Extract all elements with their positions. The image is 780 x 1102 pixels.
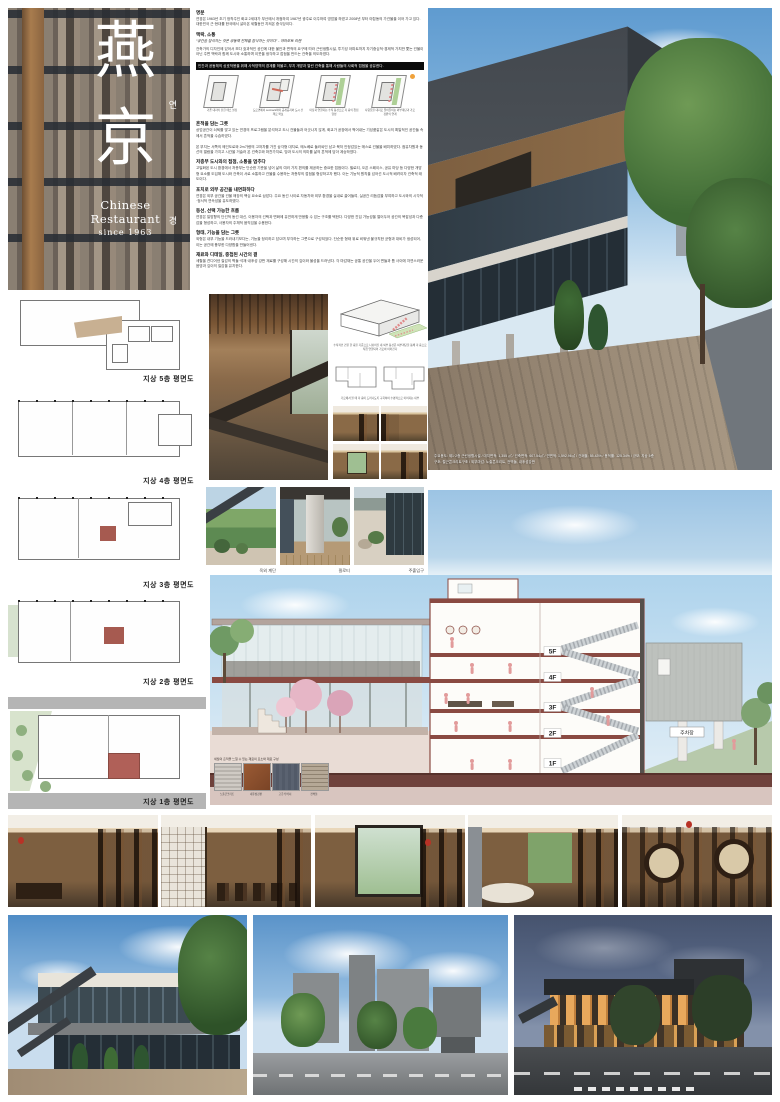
plan-stair-core (100, 526, 116, 541)
tree-canopy (178, 915, 247, 1035)
plan-wall (70, 601, 71, 661)
tall-window-green-view (355, 825, 423, 897)
stairwell-photo (209, 294, 328, 480)
hero-caption-line2: 구조: 철근콘크리트구조 / 외부마감: 노출콘크리트, 전벽돌, 내후성강판 (434, 460, 766, 466)
material-stone: 고흥석 버너 (272, 763, 298, 796)
wood-screen (98, 829, 158, 907)
lane-marking (514, 1072, 772, 1075)
intro-highlight: 인간과 공동체의 상호작용을 위해 사적영역의 경계를 허물고, 부지 개방과 … (196, 62, 424, 70)
intro-body-6: 연경은 일방향의 단선적 동선 대신, 이용자의 선택과 변화에 유연하게 반응… (196, 215, 424, 226)
mini-plan-diagrams (333, 364, 427, 394)
interior-photo-5 (622, 815, 772, 907)
red-lantern (18, 837, 24, 844)
wood-screen (359, 414, 379, 441)
annex-label: 주차장 (680, 730, 694, 737)
diagram-caption-2: 도로면에서 set-back하여 공개공지와 도시 산책로 확보 (252, 109, 304, 116)
wood-screen (381, 414, 399, 441)
exterior-photo-dusk (514, 915, 772, 1095)
street-tree (357, 1001, 397, 1049)
wood-screen (401, 452, 423, 479)
axonometric-diagram (333, 296, 427, 342)
logo-hanja-bottom: 京 (68, 109, 183, 168)
diagram-caption-1: 기존 대지의 닫힌 매스 설정 (196, 109, 248, 113)
material-palette: 노출콘크리트 내후성강판 고흥석 버너 전벽돌 (214, 763, 327, 796)
logo-reading-bottom: 경 (169, 214, 177, 227)
furniture (448, 701, 482, 707)
hero-caption: 주요용도: 제1·2종 근린생활시설 / 대지면적: 1,355 ㎡ / 건축면… (434, 454, 766, 466)
concept-diagram-3: 마당과 연결되는 수직 동선으로 각 층의 접점 형성 (308, 74, 360, 117)
material-swatch (301, 763, 329, 791)
floor-label-3f: 3F (549, 705, 557, 712)
intro-heading-7: 형태, 기능을 담는 그릇 (196, 230, 424, 236)
plan-tree (16, 725, 27, 736)
floor-label-4f: 4F (549, 675, 557, 682)
material-brick: 전벽돌 (301, 763, 327, 796)
red-lantern (425, 839, 431, 846)
wood-post (22, 8, 44, 290)
plan-5f: 지상 5층 평면도 (8, 292, 206, 390)
plan-5f-label: 지상 5층 평면도 (143, 374, 194, 384)
intro-body-7: 외형은 내부 기능을 드러내기보다는, 기능을 정리하고 담으며 부각하는 그릇… (196, 237, 424, 248)
concrete-volume (433, 987, 481, 1037)
cloud (534, 925, 674, 971)
material-swatch (272, 763, 300, 791)
plan-2f-label: 지상 2층 평면도 (143, 677, 194, 687)
plan-wall (78, 498, 79, 558)
white-lattice (161, 827, 207, 907)
plan-1f-label: 지상 1층 평면도 (143, 797, 194, 807)
plan-landscape (8, 605, 18, 657)
presentation-board: 燕 연 京 경 Chinese Restaurant since 1963 명분… (0, 0, 780, 1102)
intro-heading-4: 저층부 도시와의 접점, 소통을 멈추다 (196, 159, 424, 165)
interior-photo-3 (315, 815, 465, 907)
concept-diagram-4: 사람들을 대지로 끌어들이는 외부계단과 가로 정원의 연계 (364, 74, 416, 117)
round-table (478, 883, 534, 903)
horizon-haze (428, 557, 772, 577)
plan-tree (12, 750, 23, 761)
floor-label-2f: 2F (549, 731, 557, 738)
interior-photo-4 (468, 815, 618, 907)
exterior-photo-street (253, 915, 508, 1095)
lane-marking (253, 1074, 508, 1077)
plan-wall (72, 401, 73, 455)
logo: 燕 연 京 경 Chinese Restaurant since 1963 (68, 22, 183, 282)
material-label-4: 전벽돌 (301, 792, 327, 796)
red-lantern (686, 821, 692, 828)
intro-body-1: 연경은 1963년 초기 정착주인 화교 2세대가 부산에서 개점하여 1987… (196, 17, 424, 28)
cloud (510, 505, 640, 545)
intro-body-8: 세월을 견디어낸 질감의 벽돌·석재·내후성 강판 재료를 구성해 시간의 깊이… (196, 259, 424, 270)
logo-hanja-top: 燕 (68, 22, 183, 81)
intro-body-3: 상업공간이 쇠퇴를 맞고 있는 연경의 프로그램을 분석하고 도시 건물들과 어… (196, 128, 424, 155)
interior-photo-1 (8, 815, 158, 907)
floor-label-1f: 1F (549, 761, 557, 768)
conifer-tree (554, 280, 584, 350)
intro-heading-5: 포치로 외부 공간을 내면화하다 (196, 187, 424, 193)
material-swatch (214, 763, 242, 791)
furniture (492, 701, 514, 707)
plan-4f-label: 지상 4층 평면도 (143, 476, 194, 486)
section-zone: 5F 4F 3F 2F 1F 주차장 (210, 487, 772, 805)
round-screen-motif (644, 843, 684, 883)
interior-thumb-2 (381, 406, 427, 441)
conifer-tree (588, 304, 608, 350)
wood-screen (277, 829, 311, 907)
axon-caption: 수직적인 건물 한 층을 기준으로 나뉘어진 내·외부 동선은 외부계단을 통해… (333, 344, 427, 351)
plan-1f: 지상 1층 평면도 (8, 695, 206, 813)
intro-heading-8: 재료와 디테일, 중첩된 시간의 결 (196, 252, 424, 258)
miniplan-caption: 가로에서 볼 때 각 층이 드러나도록 구획하여 수평적으로 이어지는 내부 (333, 396, 427, 400)
interior-thumb-3 (333, 444, 379, 479)
exterior-photo-day-stair (8, 915, 247, 1095)
plan-3f: 지상 3층 평면도 (8, 492, 206, 592)
green-mural (528, 833, 572, 883)
plan-columns (18, 600, 178, 602)
plan-wall (126, 401, 127, 455)
crosswalk (574, 1087, 694, 1091)
dining-table (16, 883, 62, 899)
logo-reading-top: 연 (169, 98, 177, 111)
intro-quote: “공간을 잠식하는 것은 공동체 전체를 잠식하는 것이다” - 야마모토 리켄 (196, 39, 424, 44)
floor-label-5f: 5F (549, 649, 557, 656)
dusk-tree (692, 975, 752, 1041)
plan-2f: 지상 2층 평면도 (8, 597, 206, 689)
concept-diagram-2: 도로면에서 set-back하여 공개공지와 도시 산책로 확보 (252, 74, 304, 117)
intro-body-4: 고밀화된 도시 환경에서 저층부는 단순한 기준을 넘어 삶의 여러 가지 편의… (196, 166, 424, 182)
concept-diagram-1: 기존 대지의 닫힌 매스 설정 (196, 74, 248, 117)
interior-thumb-4 (381, 444, 427, 479)
intro-heading-6: 동선, 선택 가능한 흐름 (196, 208, 424, 214)
intro-heading-2: 맥락, 소통 (196, 32, 424, 38)
street-tree-canopy (686, 178, 772, 308)
interior-photo-2 (161, 815, 311, 907)
material-corten: 내후성강판 (243, 763, 269, 796)
plan-columns (18, 497, 178, 499)
dusk-tree (610, 985, 660, 1045)
concept-diagrams: 기존 대지의 닫힌 매스 설정 도로면에서 set-back하여 공개공지와 도… (196, 74, 424, 117)
wood-screen (578, 829, 618, 907)
materials-caption: 세월의 흔적을 느낄 수 있는 재료의 요소와 재료 구성 (214, 757, 279, 761)
concrete-column (468, 827, 482, 907)
intro-heading-3: 흔적을 담는 그릇 (196, 121, 424, 127)
plan-road-top (8, 697, 206, 709)
street-tree (281, 993, 325, 1047)
material-label-2: 내후성강판 (243, 792, 269, 796)
plan-tree (22, 770, 33, 781)
window-green-view (347, 452, 367, 474)
logo-since: since 1963 (68, 228, 183, 237)
wood-ceiling-slats (209, 294, 328, 334)
material-label-1: 노출콘크리트 (214, 792, 240, 796)
plan-4f: 지상 4층 평면도 (8, 396, 206, 488)
plan-tree (40, 781, 51, 792)
intro-heading-1: 명분 (196, 10, 424, 16)
tree-trunk (700, 284, 705, 364)
plan-columns (18, 400, 178, 402)
diagram-caption-3: 마당과 연결되는 수직 동선으로 각 층의 접점 형성 (308, 109, 360, 116)
round-screen-motif (714, 839, 754, 879)
intro-column: 명분 연경은 1963년 초기 정착주인 화교 2세대가 부산에서 개점하여 1… (196, 10, 424, 292)
interior-thumb-1 (333, 406, 379, 441)
material-label-3: 고흥석 버너 (272, 792, 298, 796)
intro-body-2: 건축가의 디자인에 있어서 보다 효과적인 공간에 대한 불안과 면적의 요구에… (196, 47, 424, 58)
diagram-caption-4: 사람들을 대지로 끌어들이는 외부계단과 가로 정원의 연계 (364, 109, 416, 116)
pavement (8, 1069, 247, 1095)
stair-flight (209, 415, 328, 465)
intro-body-5: 연경은 외부 공간을 건물 매장의 핵심 요소로 삼았다. 주요 동선 사이로 … (196, 194, 424, 205)
logo-subtitle: Chinese Restaurant (68, 198, 183, 226)
material-swatch (243, 763, 271, 791)
plan-stair-core (104, 627, 124, 644)
plan-stair-core (108, 753, 140, 779)
plan-3f-label: 지상 3층 평면도 (143, 580, 194, 590)
hero-photo: 주요용도: 제1·2종 근린생활시설 / 대지면적: 1,355 ㎡ / 건축면… (428, 8, 772, 470)
street-tree (403, 1007, 437, 1049)
material-concrete: 노출콘크리트 (214, 763, 240, 796)
brand-photo: 燕 연 京 경 Chinese Restaurant since 1963 (8, 8, 190, 290)
